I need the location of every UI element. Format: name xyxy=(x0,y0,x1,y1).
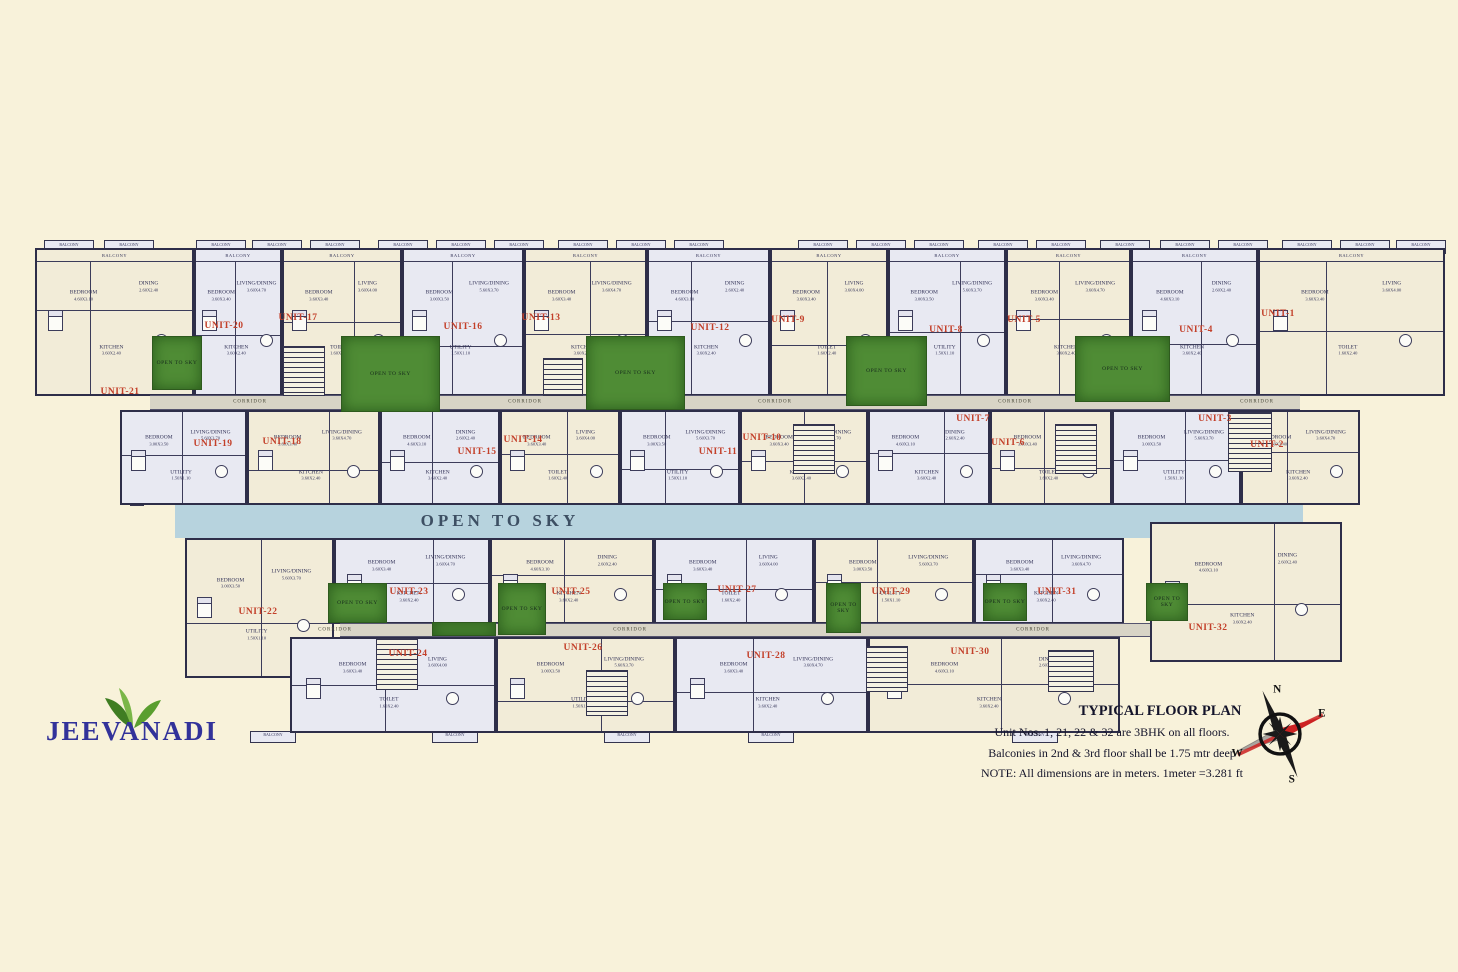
corridor-label: CORRIDOR xyxy=(758,400,792,405)
room-name: BEDROOM xyxy=(207,291,235,297)
room-label: BEDROOM3.60X3.40 xyxy=(720,663,748,674)
room-name: BEDROOM xyxy=(305,291,333,297)
room-label: KITCHEN3.60X2.40 xyxy=(756,698,780,709)
table-icon xyxy=(494,334,507,347)
internal-wall xyxy=(567,412,568,503)
room-dimension: 4.60X3.10 xyxy=(403,441,431,447)
balcony-strip: BALCONY xyxy=(1133,250,1256,262)
room-name: BEDROOM xyxy=(339,663,367,669)
unit-label: UNIT-13 xyxy=(521,313,560,323)
room-name: BEDROOM xyxy=(145,436,173,442)
room-label: DINING2.60X2.40 xyxy=(456,430,476,441)
room-dimension: 3.60X2.40 xyxy=(1230,619,1254,625)
room-dimension: 3.60X4.00 xyxy=(1382,287,1401,293)
open-to-sky-courtyard: OPEN TO SKY xyxy=(1075,336,1170,402)
internal-wall xyxy=(433,540,434,622)
room-dimension: 3.60X4.70 xyxy=(236,287,276,293)
room-name: DINING xyxy=(597,556,617,562)
internal-wall xyxy=(432,412,433,503)
room-name: LIVING xyxy=(1382,282,1401,288)
internal-wall xyxy=(1274,524,1275,660)
room-label: LIVING3.60X4.00 xyxy=(428,657,447,668)
bed-pillow xyxy=(987,575,1000,581)
room-dimension: 4.60X3.10 xyxy=(892,441,920,447)
balcony-strip: BALCONY xyxy=(1008,250,1129,262)
room-dimension: 2.60X2.40 xyxy=(139,287,159,293)
internal-wall xyxy=(526,334,645,335)
room-name: TOILET xyxy=(379,698,398,704)
table-icon xyxy=(710,465,723,478)
room-label: LIVING3.60X4.00 xyxy=(358,282,377,293)
room-dimension: 3.60X2.40 xyxy=(426,476,450,482)
room-name: LIVING xyxy=(358,282,377,288)
room-label: UTILITY1.50X1.10 xyxy=(450,345,472,356)
unit-label: UNIT-14 xyxy=(503,435,542,445)
room-label: BEDROOM4.60X3.10 xyxy=(671,291,699,302)
room-dimension: 1.50X1.10 xyxy=(1163,476,1185,482)
room-name: LIVING/DINING xyxy=(271,570,311,576)
balcony-strip: BALCONY xyxy=(37,250,192,262)
room-name: LIVING/DINING xyxy=(592,282,632,288)
bed-icon xyxy=(1123,450,1138,471)
room-dimension: 3.60X4.70 xyxy=(322,436,362,442)
room-label: BEDROOM3.60X3.40 xyxy=(1031,291,1059,302)
internal-wall xyxy=(1052,540,1053,622)
table-icon xyxy=(260,334,273,347)
room-name: UTILITY xyxy=(246,630,268,636)
room-name: UTILITY xyxy=(450,345,472,351)
room-name: LIVING/DINING xyxy=(604,657,644,663)
room-name: UTILITY xyxy=(1163,470,1185,476)
unit-label: UNIT-11 xyxy=(699,447,738,457)
room-dimension: 3.60X4.70 xyxy=(1061,561,1101,567)
room-label: BEDROOM3.60X3.40 xyxy=(207,291,235,302)
unit-unit-15: BEDROOM4.60X3.10DINING2.60X2.40KITCHEN3.… xyxy=(380,410,500,505)
table-icon xyxy=(1226,334,1239,347)
room-dimension: 3.60X2.40 xyxy=(977,703,1001,709)
room-dimension: 3.00X3.50 xyxy=(910,296,938,302)
open-to-sky-courtyard: OPEN TO SKY xyxy=(983,583,1027,621)
room-label: BEDROOM3.00X3.50 xyxy=(1138,436,1166,447)
room-dimension: 3.60X2.40 xyxy=(1180,351,1204,357)
bed-pillow xyxy=(511,679,524,685)
corridor-label: CORRIDOR xyxy=(1016,628,1050,633)
bed-pillow xyxy=(132,451,145,457)
open-to-sky-courtyard xyxy=(432,622,496,636)
open-to-sky-courtyard: OPEN TO SKY xyxy=(341,336,440,412)
balcony-strip: BALCONY xyxy=(649,250,768,262)
unit-label: UNIT-9 xyxy=(771,315,805,325)
room-name: KITCHEN xyxy=(1230,614,1254,620)
room-label: BEDROOM4.60X3.10 xyxy=(403,436,431,447)
room-name: KITCHEN xyxy=(224,345,248,351)
room-dimension: 3.60X3.40 xyxy=(548,296,576,302)
staircase-icon xyxy=(543,358,583,396)
room-label: BEDROOM3.60X3.40 xyxy=(548,291,576,302)
room-dimension: 3.00X3.50 xyxy=(537,668,565,674)
room-name: BEDROOM xyxy=(892,436,920,442)
internal-wall xyxy=(746,540,747,622)
room-label: BEDROOM3.60X3.40 xyxy=(339,663,367,674)
room-name: LIVING/DINING xyxy=(1306,430,1346,436)
room-label: BEDROOM4.60X3.10 xyxy=(526,561,554,572)
unit-label: UNIT-18 xyxy=(262,437,301,447)
room-label: LIVING3.60X4.00 xyxy=(759,556,778,567)
room-name: BEDROOM xyxy=(526,561,554,567)
room-dimension: 3.60X2.40 xyxy=(789,476,813,482)
room-dimension: 2.60X2.40 xyxy=(945,436,965,442)
room-name: LIVING/DINING xyxy=(952,282,992,288)
staircase-icon xyxy=(586,670,628,716)
room-dimension: 3.60X3.40 xyxy=(792,296,820,302)
room-name: KITCHEN xyxy=(299,470,323,476)
notes-line-3: NOTE: All dimensions are in meters. 1met… xyxy=(981,766,1243,781)
room-name: BEDROOM xyxy=(548,291,576,297)
room-name: DINING xyxy=(725,282,745,288)
unit-label: UNIT-16 xyxy=(443,322,482,332)
unit-label: UNIT-30 xyxy=(950,647,989,657)
balcony-strip: BALCONY xyxy=(890,250,1004,262)
unit-label: UNIT-23 xyxy=(389,587,428,597)
bed-icon xyxy=(510,678,525,699)
room-dimension: 3.60X4.70 xyxy=(793,663,833,669)
bed-icon xyxy=(1142,310,1157,331)
unit-label: UNIT-25 xyxy=(551,587,590,597)
table-icon xyxy=(1399,334,1412,347)
room-name: BEDROOM xyxy=(849,561,877,567)
open-to-sky-courtyard: OPEN TO SKY xyxy=(663,583,707,620)
internal-wall xyxy=(1185,412,1186,503)
room-dimension: 1.60X2.40 xyxy=(379,703,398,709)
room-name: TOILET xyxy=(1338,345,1357,351)
room-dimension: 4.60X3.10 xyxy=(931,668,959,674)
room-label: KITCHEN3.60X2.40 xyxy=(694,345,718,356)
unit-unit-11: BEDROOM3.00X3.50LIVING/DINING5.60X3.70UT… xyxy=(620,410,740,505)
room-label: LIVING3.60X4.00 xyxy=(1382,282,1401,293)
compass-e: E xyxy=(1318,708,1326,720)
bed-icon xyxy=(898,310,913,331)
room-label: DINING2.60X2.40 xyxy=(725,282,745,293)
bed-icon xyxy=(48,310,63,331)
room-dimension: 3.00X3.50 xyxy=(145,441,173,447)
room-dimension: 4.60X3.10 xyxy=(70,296,98,302)
bed-pillow xyxy=(259,451,272,457)
staircase-icon xyxy=(793,424,835,474)
room-label: BEDROOM4.60X3.10 xyxy=(70,291,98,302)
open-to-sky-courtyard: OPEN TO SKY xyxy=(328,583,387,623)
internal-wall xyxy=(187,623,332,624)
room-label: BEDROOM4.60X3.10 xyxy=(931,663,959,674)
room-name: TOILET xyxy=(817,345,836,351)
room-label: BEDROOM3.60X3.40 xyxy=(368,561,396,572)
room-name: KITCHEN xyxy=(99,345,123,351)
room-name: DINING xyxy=(1278,554,1298,560)
room-name: LIVING/DINING xyxy=(425,556,465,562)
room-label: BEDROOM3.60X3.40 xyxy=(689,561,717,572)
room-dimension: 5.60X3.70 xyxy=(271,575,311,581)
room-label: LIVING/DINING5.60X3.70 xyxy=(1184,430,1224,441)
room-name: LIVING/DINING xyxy=(1061,556,1101,562)
notes-title: TYPICAL FLOOR PLAN xyxy=(1079,703,1242,720)
room-dimension: 1.60X2.40 xyxy=(548,476,567,482)
room-dimension: 3.60X4.00 xyxy=(576,436,595,442)
unit-unit-7: BEDROOM4.60X3.10DINING2.60X2.40KITCHEN3.… xyxy=(868,410,990,505)
room-dimension: 2.60X2.40 xyxy=(456,436,476,442)
table-icon xyxy=(347,465,360,478)
room-label: DINING2.60X2.40 xyxy=(139,282,159,293)
room-dimension: 3.60X3.40 xyxy=(207,296,235,302)
room-name: BEDROOM xyxy=(70,291,98,297)
room-label: LIVING/DINING5.60X3.70 xyxy=(469,282,509,293)
table-icon xyxy=(297,619,310,632)
unit-label: UNIT-6 xyxy=(991,438,1025,448)
courtyard-label: OPEN TO SKY xyxy=(502,606,543,612)
room-label: BEDROOM3.00X3.50 xyxy=(145,436,173,447)
room-name: BEDROOM xyxy=(720,663,748,669)
bed-pillow xyxy=(1124,451,1137,457)
room-dimension: 3.60X2.40 xyxy=(1034,597,1058,603)
room-label: BEDROOM3.60X3.40 xyxy=(1301,291,1329,302)
room-label: LIVING/DINING5.60X3.70 xyxy=(686,430,726,441)
room-label: DINING2.60X2.40 xyxy=(1278,554,1298,565)
internal-wall xyxy=(1044,412,1045,503)
room-dimension: 3.60X2.40 xyxy=(397,597,421,603)
corridor-label: CORRIDOR xyxy=(613,628,647,633)
bed-pillow xyxy=(504,575,517,581)
unit-label: UNIT-15 xyxy=(457,447,496,457)
room-label: TOILET1.60X2.40 xyxy=(548,470,567,481)
notes-line-1: Unit Nos. 1, 21, 22 & 32 are 3BHK on all… xyxy=(995,725,1230,740)
courtyard-label: OPEN TO SKY xyxy=(337,600,378,606)
unit-label: UNIT-28 xyxy=(746,651,785,661)
room-name: BEDROOM xyxy=(537,663,565,669)
room-dimension: 3.60X4.00 xyxy=(358,287,377,293)
staircase-icon xyxy=(283,346,325,396)
room-name: BEDROOM xyxy=(1195,562,1223,568)
room-name: LIVING/DINING xyxy=(322,430,362,436)
room-dimension: 5.60X3.70 xyxy=(686,436,726,442)
unit-label: UNIT-10 xyxy=(742,433,781,443)
bed-pillow xyxy=(899,311,912,317)
bed-pillow xyxy=(203,311,216,317)
courtyard-label: OPEN TO SKY xyxy=(985,599,1026,605)
room-label: LIVING/DINING5.60X3.70 xyxy=(604,657,644,668)
unit-label: UNIT-5 xyxy=(1007,315,1041,325)
table-icon xyxy=(1087,588,1100,601)
room-dimension: 3.60X3.40 xyxy=(1031,296,1059,302)
room-label: LIVING/DINING3.60X4.70 xyxy=(425,556,465,567)
room-dimension: 1.60X2.40 xyxy=(1338,351,1357,357)
internal-wall xyxy=(329,412,330,503)
bed-icon xyxy=(630,450,645,471)
room-name: BEDROOM xyxy=(689,561,717,567)
room-dimension: 1.50X1.10 xyxy=(880,597,902,603)
internal-wall xyxy=(944,412,945,503)
room-name: BEDROOM xyxy=(1138,436,1166,442)
room-label: KITCHEN3.60X2.40 xyxy=(1286,470,1310,481)
room-name: UTILITY xyxy=(170,470,192,476)
room-label: KITCHEN3.60X2.40 xyxy=(299,470,323,481)
room-label: BEDROOM4.60X3.10 xyxy=(1156,291,1184,302)
room-name: BEDROOM xyxy=(1156,291,1184,297)
room-label: UTILITY1.50X1.10 xyxy=(667,470,689,481)
room-dimension: 4.60X3.10 xyxy=(1195,568,1223,574)
room-dimension: 2.60X2.40 xyxy=(1278,559,1298,565)
unit-label: UNIT-19 xyxy=(193,439,232,449)
room-dimension: 3.60X3.40 xyxy=(720,668,748,674)
unit-label: UNIT-2 xyxy=(1250,440,1284,450)
internal-wall xyxy=(1287,412,1288,503)
unit-label: UNIT-8 xyxy=(929,325,963,335)
room-dimension: 1.50X1.10 xyxy=(934,351,956,357)
bed-pillow xyxy=(511,451,524,457)
bed-icon xyxy=(306,678,321,699)
table-icon xyxy=(470,465,483,478)
room-dimension: 3.60X3.40 xyxy=(1301,296,1329,302)
balcony-strip: BALCONY xyxy=(404,250,522,262)
room-label: BEDROOM3.00X3.50 xyxy=(217,578,245,589)
room-label: KITCHEN3.60X2.40 xyxy=(99,345,123,356)
notes-line-2: Balconies in 2nd & 3rd floor shall be 1.… xyxy=(988,746,1236,761)
bed-pillow xyxy=(198,598,211,604)
courtyard-label: OPEN TO SKY xyxy=(665,599,706,605)
room-dimension: 5.60X3.70 xyxy=(604,663,644,669)
room-label: KITCHEN3.60X2.40 xyxy=(224,345,248,356)
corridor-label: CORRIDOR xyxy=(508,400,542,405)
unit-label: UNIT-32 xyxy=(1188,623,1227,633)
room-label: DINING2.60X2.40 xyxy=(597,556,617,567)
room-label: KITCHEN3.60X2.40 xyxy=(1180,345,1204,356)
room-label: LIVING/DINING5.60X3.70 xyxy=(908,556,948,567)
room-label: BEDROOM3.60X3.40 xyxy=(792,291,820,302)
room-name: LIVING xyxy=(759,556,778,562)
room-dimension: 3.60X4.00 xyxy=(428,663,447,669)
room-label: TOILET1.60X2.40 xyxy=(379,698,398,709)
bed-icon xyxy=(390,450,405,471)
unit-unit-1: BALCONYBEDROOM3.60X3.40LIVING3.60X4.00TO… xyxy=(1258,248,1445,396)
room-dimension: 3.60X4.00 xyxy=(845,287,864,293)
unit-label: UNIT-21 xyxy=(100,387,139,397)
unit-unit-3: BEDROOM3.00X3.50LIVING/DINING5.60X3.70UT… xyxy=(1112,410,1241,505)
room-dimension: 4.60X3.10 xyxy=(526,566,554,572)
room-name: LIVING/DINING xyxy=(1184,430,1224,436)
unit-label: UNIT-1 xyxy=(1261,309,1295,319)
table-icon xyxy=(836,465,849,478)
table-icon xyxy=(960,465,973,478)
room-name: KITCHEN xyxy=(977,698,1001,704)
room-dimension: 1.50X1.10 xyxy=(667,476,689,482)
open-to-sky-band xyxy=(175,504,1303,538)
room-label: BEDROOM3.00X3.50 xyxy=(910,291,938,302)
compass-w: W xyxy=(1231,748,1243,760)
room-dimension: 3.60X3.40 xyxy=(368,566,396,572)
courtyard-label: OPEN TO SKY xyxy=(1102,366,1143,372)
unit-label: UNIT-20 xyxy=(204,321,243,331)
room-label: KITCHEN3.60X2.40 xyxy=(915,470,939,481)
room-name: DINING xyxy=(456,430,476,436)
open-to-sky-courtyard: OPEN TO SKY xyxy=(1146,583,1188,621)
room-label: LIVING3.60X4.00 xyxy=(576,430,595,441)
courtyard-label: OPEN TO SKY xyxy=(615,370,656,376)
staircase-icon xyxy=(1048,650,1094,692)
unit-unit-18: BEDROOM3.60X3.40LIVING/DINING3.60X4.70KI… xyxy=(247,410,380,505)
room-label: UTILITY1.50X1.10 xyxy=(934,345,956,356)
room-dimension: 4.60X3.10 xyxy=(671,296,699,302)
open-to-sky-courtyard: OPEN TO SKY xyxy=(586,336,685,410)
room-label: KITCHEN3.60X2.40 xyxy=(1230,614,1254,625)
room-label: LIVING/DINING5.60X3.70 xyxy=(271,570,311,581)
bed-icon xyxy=(878,450,893,471)
balcony-strip: BALCONY xyxy=(284,250,400,262)
unit-label: UNIT-4 xyxy=(1179,325,1213,335)
room-label: LIVING/DINING3.60X4.70 xyxy=(1306,430,1346,441)
room-dimension: 5.60X3.70 xyxy=(952,287,992,293)
internal-wall xyxy=(182,412,183,503)
courtyard-label: OPEN TO SKY xyxy=(827,602,860,614)
room-name: LIVING/DINING xyxy=(191,430,231,436)
room-label: LIVING/DINING3.60X4.70 xyxy=(592,282,632,293)
room-name: TOILET xyxy=(548,470,567,476)
bed-pillow xyxy=(348,575,361,581)
unit-label: UNIT-31 xyxy=(1037,587,1076,597)
room-dimension: 3.60X2.40 xyxy=(1286,476,1310,482)
room-label: BEDROOM3.00X3.50 xyxy=(849,561,877,572)
bed-pillow xyxy=(879,451,892,457)
room-name: KITCHEN xyxy=(694,345,718,351)
room-name: KITCHEN xyxy=(426,470,450,476)
room-name: BEDROOM xyxy=(403,436,431,442)
room-label: KITCHEN3.60X2.40 xyxy=(426,470,450,481)
bed-icon xyxy=(258,450,273,471)
room-dimension: 3.60X4.70 xyxy=(1075,287,1115,293)
room-label: BEDROOM4.60X3.10 xyxy=(892,436,920,447)
table-icon xyxy=(1058,692,1071,705)
table-icon xyxy=(977,334,990,347)
corridor-label: CORRIDOR xyxy=(1240,400,1274,405)
room-label: TOILET1.60X2.40 xyxy=(1338,345,1357,356)
bed-icon xyxy=(751,450,766,471)
internal-wall xyxy=(1059,261,1060,394)
room-name: DINING xyxy=(945,430,965,436)
room-label: BEDROOM4.60X3.10 xyxy=(1195,562,1223,573)
bed-pillow xyxy=(1143,311,1156,317)
bed-icon xyxy=(412,310,427,331)
courtyard-label: OPEN TO SKY xyxy=(866,368,907,374)
bed-icon xyxy=(1000,450,1015,471)
room-dimension: 3.60X2.40 xyxy=(915,476,939,482)
room-label: LIVING3.60X4.00 xyxy=(845,282,864,293)
table-icon xyxy=(1330,465,1343,478)
room-name: BEDROOM xyxy=(910,291,938,297)
room-dimension: 4.60X3.10 xyxy=(1156,296,1184,302)
unit-label: UNIT-22 xyxy=(238,607,277,617)
room-dimension: 5.60X3.70 xyxy=(469,287,509,293)
room-name: LIVING/DINING xyxy=(1075,282,1115,288)
compass-s: S xyxy=(1289,774,1295,786)
internal-wall xyxy=(677,692,866,693)
room-dimension: 3.60X3.40 xyxy=(689,566,717,572)
room-dimension: 3.00X3.50 xyxy=(849,566,877,572)
unit-unit-14: BEDROOM3.60X3.40LIVING3.60X4.00TOILET1.6… xyxy=(500,410,620,505)
room-dimension: 3.60X3.40 xyxy=(305,296,333,302)
room-label: LIVING/DINING5.60X3.70 xyxy=(952,282,992,293)
room-dimension: 3.60X3.40 xyxy=(1006,566,1034,572)
room-label: LIVING/DINING3.60X4.70 xyxy=(1061,556,1101,567)
room-name: KITCHEN xyxy=(756,698,780,704)
room-name: LIVING xyxy=(576,430,595,436)
room-name: BEDROOM xyxy=(217,578,245,584)
internal-wall xyxy=(827,261,828,394)
